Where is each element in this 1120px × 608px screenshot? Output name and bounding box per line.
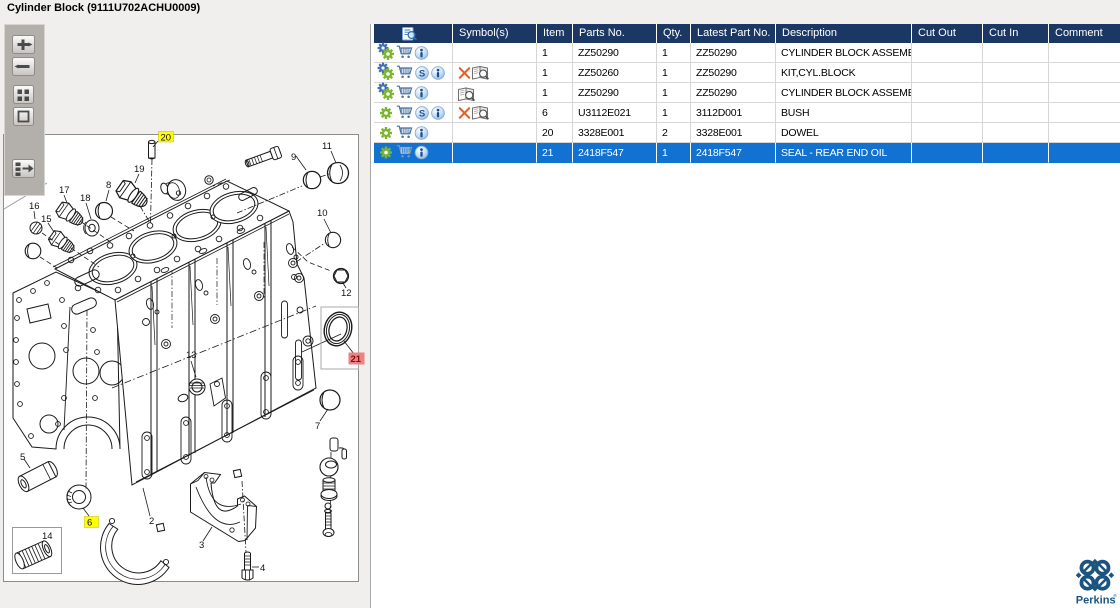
svg-text:8: 8 [106, 180, 111, 191]
svg-text:19: 19 [134, 164, 145, 175]
svg-text:21: 21 [351, 354, 362, 365]
svg-text:12: 12 [341, 288, 352, 299]
svg-text:10: 10 [317, 208, 328, 219]
svg-text:®: ® [1113, 592, 1117, 599]
svg-text:13: 13 [186, 350, 197, 361]
svg-text:17: 17 [59, 185, 70, 196]
svg-text:16: 16 [29, 201, 40, 212]
svg-text:3: 3 [199, 540, 204, 551]
svg-text:Perkins: Perkins [1076, 595, 1116, 607]
svg-text:18: 18 [80, 193, 91, 204]
svg-text:6: 6 [87, 518, 92, 529]
svg-text:7: 7 [315, 421, 320, 432]
svg-text:9: 9 [291, 152, 296, 163]
svg-text:15: 15 [41, 214, 52, 225]
svg-text:5: 5 [20, 452, 25, 463]
svg-text:2: 2 [149, 516, 154, 527]
svg-text:14: 14 [42, 531, 53, 542]
svg-text:11: 11 [322, 141, 332, 152]
svg-text:20: 20 [161, 133, 172, 144]
svg-text:4: 4 [260, 563, 265, 574]
